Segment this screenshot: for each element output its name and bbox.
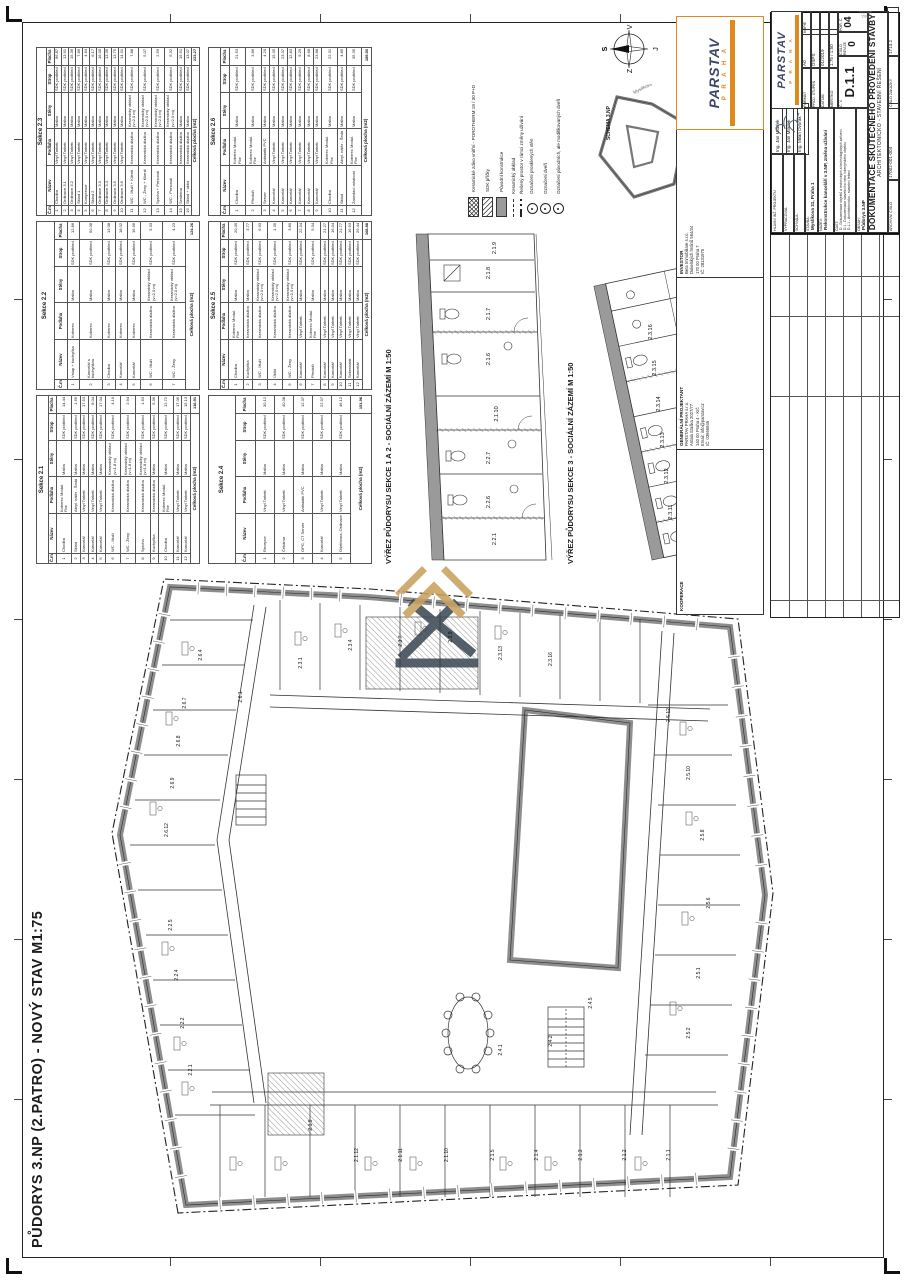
legend-item: SDK příčky: [482, 15, 493, 217]
parstav-logo-large: PARSTAV P R A H A: [676, 16, 764, 130]
svg-text:2.3.14: 2.3.14: [656, 396, 662, 411]
svg-text:V: V: [627, 24, 634, 29]
svg-text:2.3.16: 2.3.16: [648, 324, 654, 339]
svg-text:2.1.7: 2.1.7: [486, 308, 492, 320]
area-table-sekce-2-1: Sekce 2.1Č.m.NázevPodlahaStěnyStropPloch…: [36, 395, 200, 564]
generalni-projektant-box: GENERÁLNÍ PROJEKTANT PARSTAV PRAHA s.r.o…: [676, 276, 764, 450]
table-row: 2ČekárnaVinyl TarkettMalbaSDK podhled40.…: [274, 395, 293, 563]
table-row: 3OPG, CT ServerAntistatik PVCMalbaSDK po…: [293, 395, 312, 563]
table-row: 4KancelářVinyl TarkettMalbaSDK podhled19…: [270, 47, 279, 215]
signature-scribble: [771, 109, 804, 137]
svg-text:2.1.10: 2.1.10: [444, 1148, 450, 1162]
page-title: PŮDORYS 3.NP (2.PATRO) - NOVÝ STAV M1:75: [30, 911, 46, 1248]
svg-text:2.2.2: 2.2.2: [180, 1017, 186, 1028]
svg-text:2.3.15: 2.3.15: [652, 360, 658, 375]
legend-item: Označení prosklených stěn: [527, 15, 537, 217]
table-row: 5KompresorVinyl TarkettMalbaSDK podhled4…: [83, 47, 90, 215]
svg-text:2.1.11: 2.1.11: [398, 1148, 404, 1162]
svg-text:2.6.1: 2.6.1: [238, 691, 244, 702]
svg-text:2.2.4: 2.2.4: [174, 969, 180, 980]
table-row: 4Sklad 1Vinyl TarkettMalbaSDK podhled7.8…: [75, 47, 82, 215]
table-row: 9Ordinace 3.5Vinyl TarkettMalbaSDK podhl…: [111, 47, 118, 215]
detail-plan-sekce-1-2: 2.2.12.2.62.2.72.1.102.1.62.1.72.1.82.1.…: [394, 230, 556, 564]
table-row: 10ChodbaKoberec Modul. FlorMalbaSDK podh…: [159, 395, 174, 563]
plot-stamp: 17002-001-004: [854, 10, 872, 18]
kooperace-box: KOOPERACE: [676, 448, 764, 615]
table-row: 11WC - Muži + KlientiKeramická dlažbaKer…: [125, 47, 138, 215]
legend-item: Keramické zdivo vnitřní - POROTHERM 19 /…: [468, 15, 479, 217]
table-row: 12Zasedací místnostKoberec Modul. FlorMa…: [346, 47, 362, 215]
main-floor-plan: 2.1.12.1.22.1.32.1.42.1.52.1.92.1.102.1.…: [70, 565, 780, 1255]
svg-text:Myslíkova: Myslíkova: [632, 84, 653, 95]
svg-text:2.4.5: 2.4.5: [588, 997, 594, 1008]
table-row: 1ChodbaVinyl TarkettMalbaSDK podhled66.8…: [54, 47, 61, 215]
svg-text:2.3.1: 2.3.1: [298, 657, 304, 668]
svg-text:J: J: [653, 47, 660, 51]
table-row: 8KancelářVinyl TarkettMalbaSDK podhled21…: [321, 221, 329, 389]
legend-swatch-cross: [468, 197, 479, 217]
wc-cluster-sekce3: [366, 617, 478, 689]
table-row: 8SprchaKeramická dlažbaKeramický obklad …: [135, 395, 150, 563]
table-row: 11KancelářVinyl TarkettMalbaSDK podhled1…: [174, 395, 182, 563]
svg-text:2.5.2: 2.5.2: [686, 1027, 692, 1038]
table-row: 7Ordinace 3.3Vinyl TarkettMalbaSDK podhl…: [97, 47, 104, 215]
legend-swatch-circ: [540, 199, 550, 217]
table-row: 5KancelářVinyl TarkettMalbaSDK podhled23…: [278, 47, 287, 215]
table-row: 4KancelářVinyl TarkettMalbaSDK podhled22…: [312, 395, 331, 563]
svg-text:2.1.1: 2.1.1: [666, 1149, 672, 1160]
area-table-sekce-2-6: Sekce 2.6Č.m.NázevPodlahaStěnyStropPloch…: [208, 47, 372, 216]
svg-text:2.1.3: 2.1.3: [578, 1149, 584, 1160]
svg-text:2.6.8: 2.6.8: [176, 735, 182, 746]
svg-text:2.2.5: 2.2.5: [168, 919, 174, 930]
svg-text:2.5.6: 2.5.6: [706, 897, 712, 908]
table-row: 10ChodbaKoberec Modul. FlorMalbaSDK podh…: [322, 47, 338, 215]
table-row: 15SesternaKeramická dlažbaMalbaSDK podhl…: [177, 47, 184, 215]
legend: Keramické zdivo vnitřní - POROTHERM 19 /…: [468, 15, 567, 217]
table-row: 1Vstup + kuchyňkaKoberecMalbaSDK podhled…: [67, 221, 80, 389]
svg-text:2.3.9: 2.3.9: [448, 631, 454, 642]
legend-swatch-solid: [496, 197, 507, 217]
svg-text:2.3.11: 2.3.11: [668, 505, 674, 520]
table-row: 2SkladAkryl. nátěr - ŠedáMalbaSDK podhle…: [72, 395, 80, 563]
table-row: 4ÚklidKeramická dlažbaKeramický obklad (…: [267, 221, 282, 389]
svg-text:2.1.5: 2.1.5: [490, 1149, 496, 1160]
table-row: 10Ordinace 3.6Vinyl TarkettMalbaSDK podh…: [118, 47, 125, 215]
table-row: 10KancelářVinyl TarkettMalbaSDK podhled2…: [337, 221, 345, 389]
area-table-sekce-2-5: Sekce 2.5Č.m.NázevPodlahaStěnyStropPloch…: [208, 221, 372, 390]
table-row: 6WC - MužiKeramická dlažbaKeramický obkl…: [105, 395, 120, 563]
table-row: 6WC - MužiKeramická dlažbaKeramický obkl…: [140, 221, 163, 389]
table-row: 5KancelářKoberecMalbaSDK podhled16.66: [128, 221, 141, 389]
table-row: 7PředsíňKoberec Modul. FlorMalbaSDK podh…: [306, 221, 321, 389]
screenshot-root: { "sheet": { "main_title": "PŮDORYS 3.NP…: [0, 0, 906, 1280]
table-row: 14WC - PersonálKeramická dlažbaKeramický…: [164, 47, 177, 215]
legend-item: Označení dveří: [540, 15, 550, 217]
svg-text:2.3.4: 2.3.4: [348, 639, 354, 650]
svg-text:2.6.4: 2.6.4: [198, 649, 204, 660]
svg-text:2.5.8: 2.5.8: [700, 829, 706, 840]
legend-swatch-dd: [520, 199, 522, 217]
table-row: 7KancelářVinyl TarkettMalbaSDK podhled9.…: [296, 47, 305, 215]
table-row: 8KancelářVinyl TarkettMalbaSDK podhled8.…: [304, 47, 313, 215]
svg-text:2.1.8: 2.1.8: [486, 267, 492, 279]
table-row: 9KancelářVinyl TarkettMalbaSDK podhled16…: [329, 221, 337, 389]
table-row: 4KancelářKoberecMalbaSDK podhled18.02: [115, 221, 128, 389]
logo-bar: [730, 20, 735, 126]
legend-item: Označení původních, ale modifikovaných d…: [553, 15, 563, 217]
table-row: 2Ordinace 3.1Vinyl TarkettMalbaSDK podhl…: [61, 47, 68, 215]
svg-text:2.3.7: 2.3.7: [398, 635, 404, 646]
area-table-sekce-2-2: Sekce 2.2Č.m.NázevPodlahaStěnyStropPloch…: [36, 221, 200, 390]
north-compass: S V J Z: [598, 20, 660, 78]
table-row: 2PředsíňKoberec Modul. FlorMalbaSDK podh…: [245, 47, 261, 215]
svg-text:2.5.12: 2.5.12: [666, 708, 672, 722]
table-row: 9KuchyňkaKeramická dlažbaMalbaSDK podhle…: [150, 395, 158, 563]
table-row: 16Sklad + úklidKeramická dlažbaMalbaSDK …: [184, 47, 191, 215]
svg-text:2.2.1: 2.2.1: [188, 1064, 194, 1075]
north-needle: [611, 45, 629, 53]
svg-text:2.3.12: 2.3.12: [664, 468, 670, 483]
table-row: 3ChodbaKoberecMalbaSDK podhled13.08: [103, 221, 116, 389]
table-row: 3Ordinace 3.2Vinyl TarkettMalbaSDK podhl…: [68, 47, 75, 215]
room-schedule-tables: Sekce 2.1Č.m.NázevPodlahaStěnyStropPloch…: [36, 48, 374, 564]
svg-text:2.3.13: 2.3.13: [498, 646, 504, 660]
investor-box: INVESTOR Beta Immobiliare s.r.o. Dukelsk…: [676, 128, 764, 278]
legend-item: Řešený prostor v rámci změny užívání: [519, 15, 524, 217]
table-row: 7WC - ŽenyKeramická dlažbaKeramický obkl…: [163, 221, 186, 389]
table-row: 1ChodbaKoberec Modul. FlorMalbaSDK podhl…: [229, 221, 244, 389]
svg-text:2.3.13: 2.3.13: [660, 432, 666, 447]
table-row: 5WC - ŽenyKeramická dlažbaKeramický obkl…: [282, 221, 297, 389]
table-row: 3ServerAntistatik PVCMalbaSDK podhled4.2…: [261, 47, 270, 215]
legend-swatch-circ: [553, 199, 563, 217]
table-row: 1ChodbaKoberec Modul. FlorMalbaSDK podhl…: [230, 47, 246, 215]
table-row: 4KancelářVinyl TarkettMalbaSDK podhled8.…: [89, 395, 97, 563]
table-row: 6KancelářVinyl TarkettMalbaSDK podhled22…: [297, 221, 305, 389]
legend-swatch-circ: [527, 199, 537, 217]
courtyard: [510, 710, 630, 968]
doc-title: DOKUMENTACE SKUTEČNÉHO PROVEDENÍ STAVBY: [868, 12, 877, 232]
legend-swatch-diag: [482, 197, 493, 217]
detail2-title: VÝŘEZ PŮDORYSU SEKCE 3 - SOCIÁLNÍ ZÁZEMÍ…: [566, 363, 575, 564]
svg-text:2.6.9: 2.6.9: [170, 777, 176, 788]
area-table-sekce-2-3: Sekce 2.3Č.m.NázevPodlahaStěnyStropPloch…: [36, 47, 200, 216]
table-row: 11SekretariátVinyl TarkettMalbaSDK podhl…: [346, 221, 354, 389]
wc-cluster-sekce12: [268, 1073, 324, 1135]
schema-label: SCHEMA 3.NP: [606, 106, 612, 140]
legend-item: Keramický obklad: [511, 15, 516, 217]
svg-text:S: S: [602, 46, 609, 51]
svg-text:2.3.16: 2.3.16: [548, 652, 554, 666]
table-row: 2Kancelář s kuchyňkouKoberecMalbaSDK pod…: [80, 221, 103, 389]
svg-text:2.5.10: 2.5.10: [686, 766, 692, 780]
table-row: 1RecepceVinyl TarkettMalbaSDK podhled30.…: [255, 395, 274, 563]
kooperace-label: KOOPERACE: [677, 449, 684, 614]
table-row: 13Sprcha + PersonálKeramická dlažbaKeram…: [151, 47, 164, 215]
table-row: 6Sklad 2Vinyl TarkettMalbaSDK podhled6.1…: [90, 47, 97, 215]
title-block: HLAVNÍ INŽ. PROJEKTU Ing. Jan Mládek VYP…: [770, 12, 900, 234]
area-table-sekce-2-4: Sekce 2.4Č.m.NázevPodlahaStěnyStropPloch…: [208, 395, 372, 564]
table-row: 3KancelářVinyl TarkettMalbaSDK podhled17…: [80, 395, 88, 563]
drawing-sheet: PŮDORYS 3.NP (2.PATRO) - NOVÝ STAV M1:75: [0, 0, 906, 1280]
parstav-logo-small: PARSTAV P R A H A: [771, 11, 803, 109]
table-row: 8Ordinace 3.4Vinyl TarkettMalbaSDK podhl…: [104, 47, 111, 215]
svg-text:2.6.7: 2.6.7: [182, 697, 188, 708]
svg-text:2.4.2: 2.4.2: [548, 1035, 554, 1046]
table-row: 5Ošetřovna, OrdinaceVinyl TarkettMalbaSD…: [331, 395, 350, 563]
table-row: 6KancelářVinyl TarkettMalbaSDK podhled12…: [287, 47, 296, 215]
svg-text:2.5.1: 2.5.1: [696, 967, 702, 978]
svg-text:Z: Z: [627, 68, 634, 73]
svg-text:2.1.9: 2.1.9: [308, 1119, 314, 1130]
table-row: 12KancelářVinyl TarkettMalbaSDK podhled1…: [182, 395, 190, 563]
table-row: 9KancelářVinyl TarkettMalbaSDK podhled23…: [313, 47, 322, 215]
table-row: 7WC - ŽenyKeramická dlažbaKeramický obkl…: [120, 395, 135, 563]
svg-text:2.1.10: 2.1.10: [494, 406, 500, 421]
revision-table: [770, 234, 900, 618]
svg-text:2.1.4: 2.1.4: [534, 1149, 540, 1160]
drawing-number: D.1.1: [843, 56, 857, 108]
doc-subtitle: ARCHITEKTONICKO - STAVEBNÍ ŘEŠENÍ: [877, 12, 883, 232]
table-row: 1ChodbaKoberec Modul. FlorMalbaSDK podhl…: [57, 395, 72, 563]
svg-text:2.1.2: 2.1.2: [622, 1149, 628, 1160]
svg-text:2.2.6: 2.2.6: [486, 496, 492, 508]
table-row: 5KancelářVinyl TarkettMalbaSDK podhled17…: [97, 395, 105, 563]
svg-text:2.2.7: 2.2.7: [486, 452, 492, 464]
legend-item: Původní konstrukce: [496, 15, 507, 217]
table-row: 2KuchyňkaKeramická dlažbaMalbaSDK podhle…: [244, 221, 252, 389]
svg-text:2.1.6: 2.1.6: [486, 353, 492, 365]
detail1-title: VÝŘEZ PŮDORYSU SEKCE 1 A 2 - SOCIÁLNÍ ZÁ…: [384, 349, 393, 564]
svg-text:2.2.1: 2.2.1: [492, 533, 498, 545]
table-row: 11SkladAkryl. nátěr - ŠedáMalbaSDK podhl…: [337, 47, 346, 215]
svg-text:2.4.1: 2.4.1: [498, 1044, 504, 1055]
svg-text:2.6.12: 2.6.12: [164, 823, 170, 837]
table-row: 3WC - MužiKeramická dlažbaKeramický obkl…: [252, 221, 267, 389]
svg-text:2.1.12: 2.1.12: [354, 1148, 360, 1162]
table-row: 12WC - Ženy + KlientiKeramická dlažbaKer…: [138, 47, 151, 215]
legend-swatch-lineD: [513, 199, 514, 217]
table-row: 12KancelářVinyl TarkettMalbaSDK podhled2…: [354, 221, 362, 389]
svg-text:2.1.9: 2.1.9: [492, 242, 498, 254]
